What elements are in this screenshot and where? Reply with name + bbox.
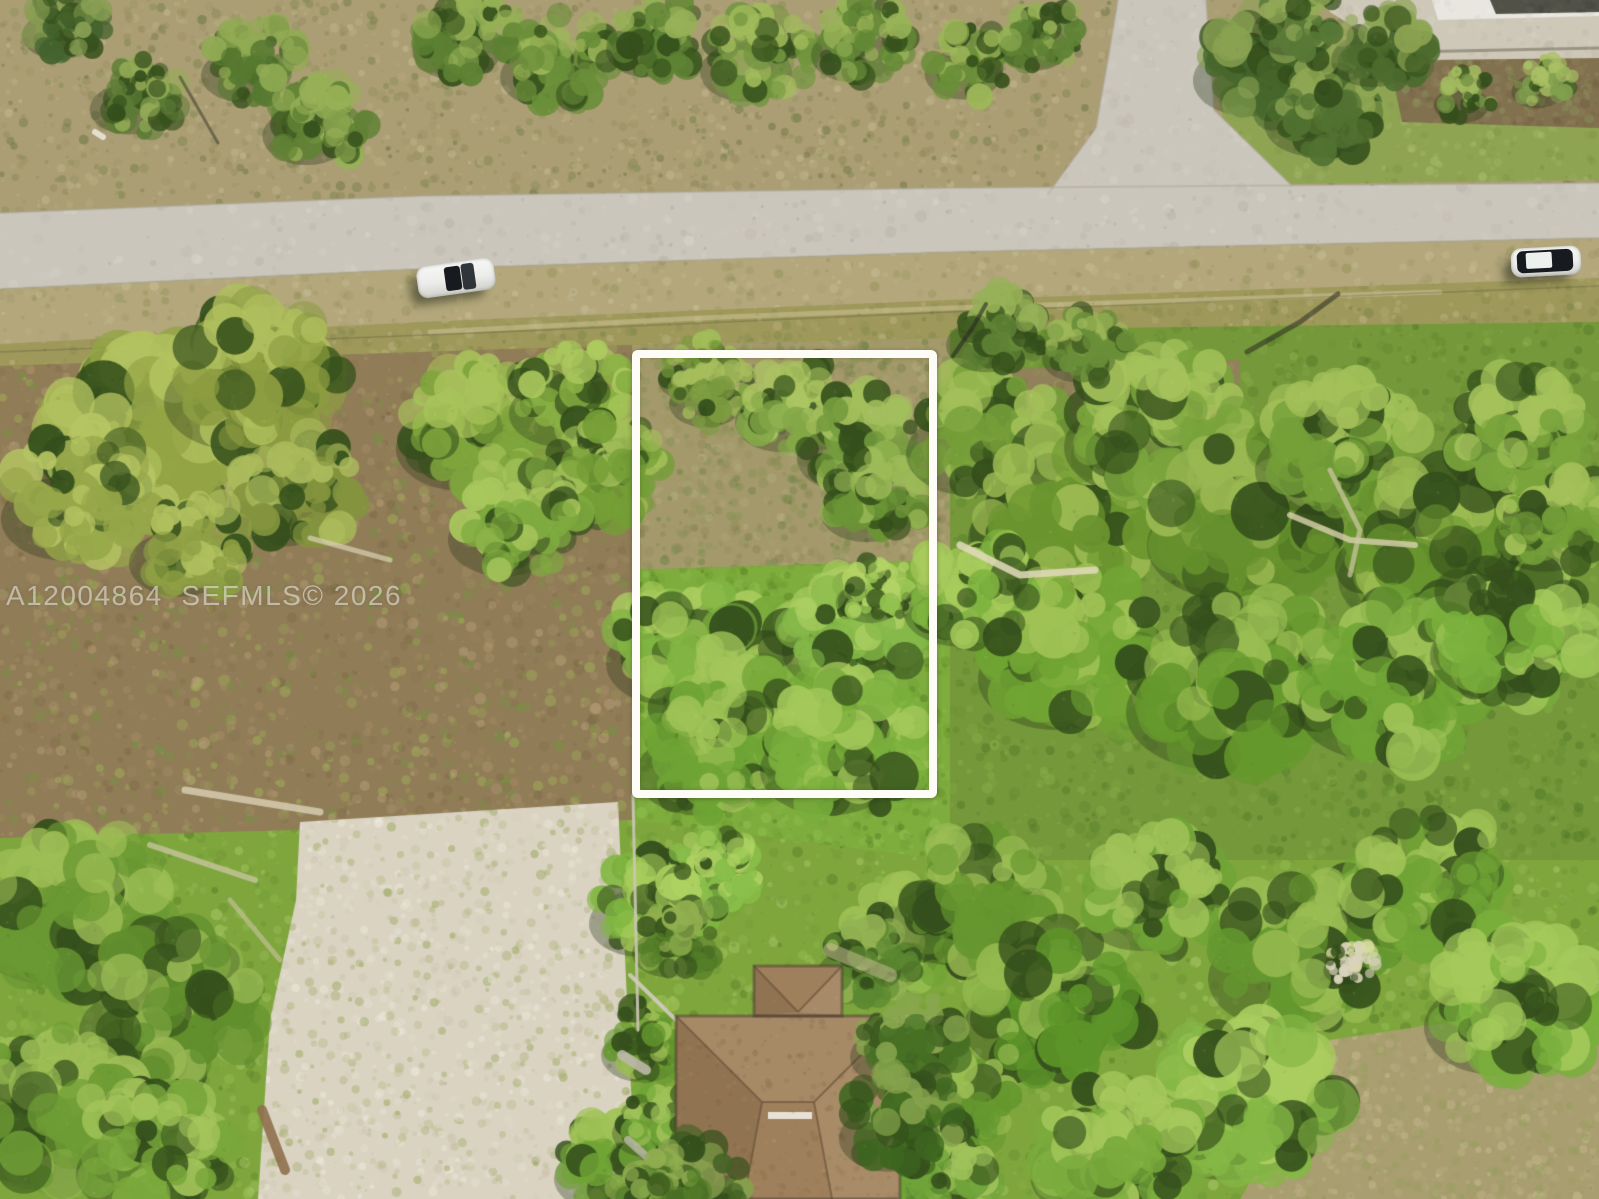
car-windshield: [460, 263, 477, 290]
lot-boundary-box: [632, 350, 937, 798]
car-sunroof: [444, 266, 463, 291]
car-roof: [1526, 252, 1552, 269]
parked-white-car-right: [1510, 245, 1581, 278]
mls-watermark: A12004864 SEFMLS© 2026: [6, 580, 402, 612]
aerial-photo: A12004864 SEFMLS© 2026: [0, 0, 1599, 1199]
